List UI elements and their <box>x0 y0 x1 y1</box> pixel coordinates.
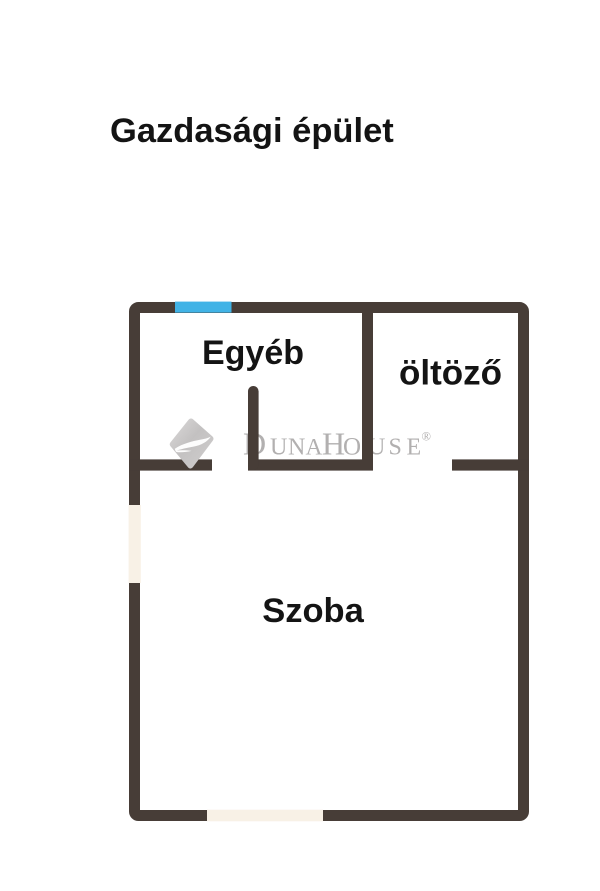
svg-text:®: ® <box>422 430 432 444</box>
svg-text:Szoba: Szoba <box>262 592 364 630</box>
svg-text:öltöző: öltöző <box>399 354 502 393</box>
svg-text:Gazdasági épület: Gazdasági épület <box>110 112 394 150</box>
svg-text:H: H <box>322 426 345 462</box>
svg-text:A: A <box>306 435 323 461</box>
svg-text:S: S <box>389 435 402 461</box>
svg-text:U: U <box>270 435 287 461</box>
svg-text:Egyéb: Egyéb <box>202 334 304 372</box>
svg-text:O: O <box>343 434 361 461</box>
svg-text:N: N <box>288 435 305 461</box>
svg-text:E: E <box>407 435 422 461</box>
